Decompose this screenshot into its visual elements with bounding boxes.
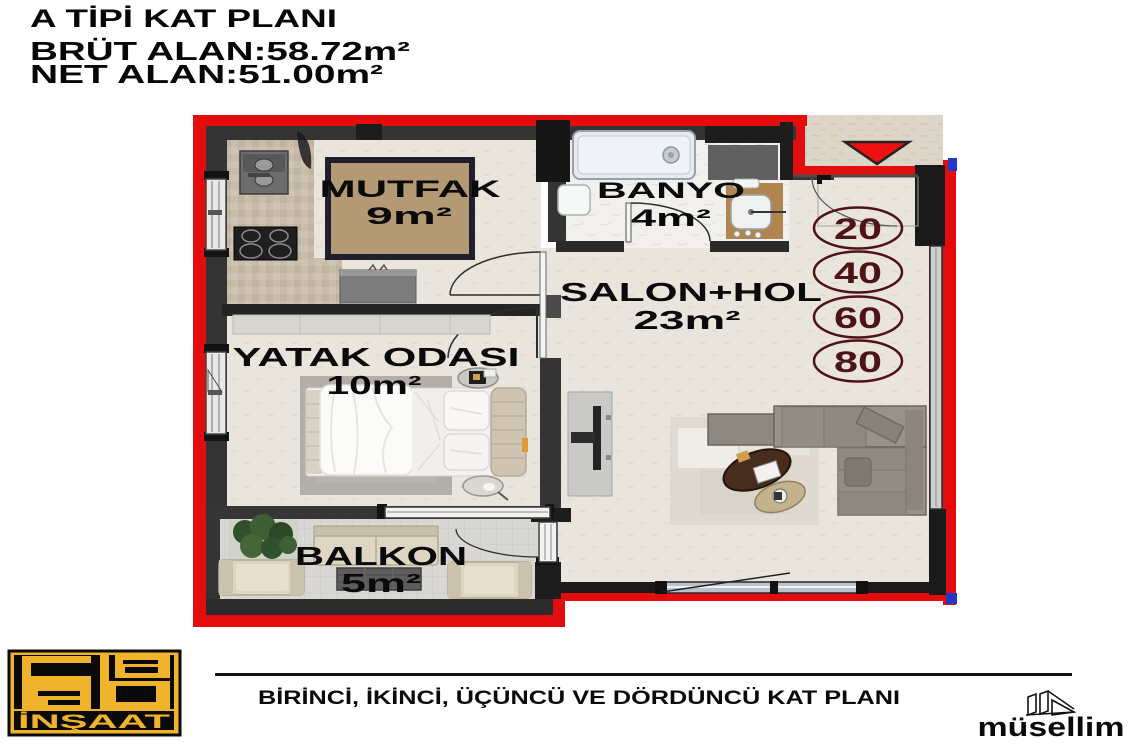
svg-text:müsellim: müsellim	[978, 712, 1125, 740]
svg-text:9m²: 9m²	[366, 203, 452, 230]
svg-text:80: 80	[834, 346, 882, 379]
svg-text:23m²: 23m²	[634, 305, 742, 335]
svg-text:40: 40	[834, 257, 882, 290]
svg-text:SALON+HOL: SALON+HOL	[560, 277, 822, 307]
svg-text:10m²: 10m²	[327, 370, 423, 400]
svg-text:A TİPİ KAT PLANI: A TİPİ KAT PLANI	[30, 5, 337, 33]
svg-text:60: 60	[834, 302, 882, 335]
svg-text:İNŞAAT: İNŞAAT	[18, 712, 171, 733]
svg-text:NET ALAN:51.00m²: NET ALAN:51.00m²	[30, 59, 384, 89]
svg-text:YATAK ODASI: YATAK ODASI	[233, 342, 520, 372]
svg-text:4m²: 4m²	[631, 205, 711, 232]
svg-text:MUTFAK: MUTFAK	[320, 176, 502, 203]
svg-text:20: 20	[834, 213, 882, 246]
svg-text:5m²: 5m²	[341, 568, 422, 598]
svg-text:BALKON: BALKON	[295, 541, 467, 571]
svg-text:BİRİNCİ, İKİNCİ, ÜÇÜNCÜ VE DÖR: BİRİNCİ, İKİNCİ, ÜÇÜNCÜ VE DÖRDÜNCÜ KAT …	[258, 688, 900, 709]
svg-text:BANYO: BANYO	[597, 178, 745, 203]
